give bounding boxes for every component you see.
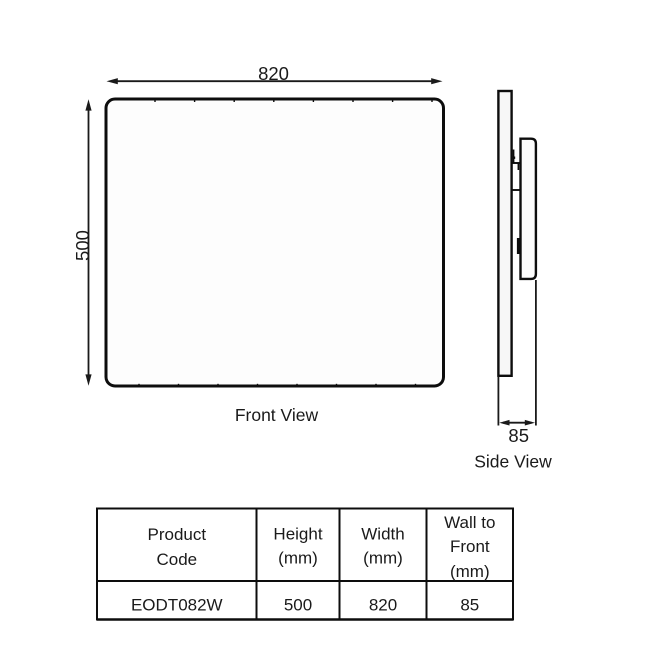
svg-text:Front: Front [450, 537, 490, 556]
svg-text:Code: Code [156, 550, 197, 569]
svg-text:85: 85 [460, 596, 479, 615]
svg-text:(mm): (mm) [278, 549, 318, 568]
svg-text:Height: Height [273, 525, 322, 544]
svg-text:85: 85 [508, 425, 529, 446]
svg-text:500: 500 [284, 596, 312, 615]
svg-text:500: 500 [72, 230, 93, 261]
svg-text:(mm): (mm) [450, 562, 490, 581]
svg-text:820: 820 [258, 63, 289, 84]
svg-text:Width: Width [361, 525, 404, 544]
svg-text:(mm): (mm) [363, 549, 403, 568]
svg-text:Product: Product [148, 525, 207, 544]
svg-text:820: 820 [369, 596, 397, 615]
svg-text:Front View: Front View [235, 405, 319, 425]
svg-text:Wall to: Wall to [444, 513, 495, 532]
svg-text:Side View: Side View [474, 452, 552, 472]
svg-text:EODT082W: EODT082W [131, 596, 223, 615]
